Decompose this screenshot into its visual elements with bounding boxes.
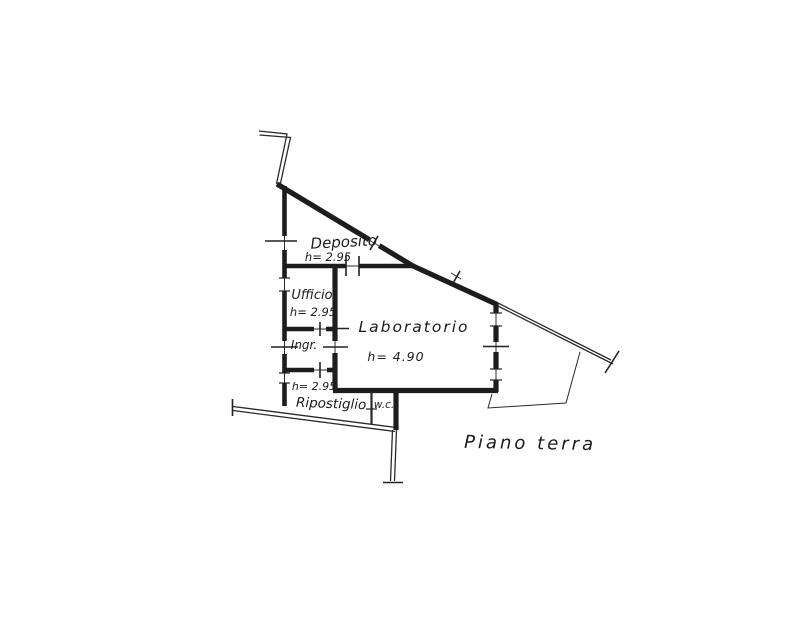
height-label-ripostiglio: h= 2.95 bbox=[292, 380, 336, 393]
height-label-laboratorio: h= 4.90 bbox=[367, 349, 424, 364]
room-label-ingresso: Ingr. bbox=[291, 338, 317, 352]
room-label-ufficio: Ufficio bbox=[291, 288, 332, 303]
floor-plan-drawing: Deposito h= 2.95 Ufficio h= 2.95 Ingr. h… bbox=[0, 0, 800, 639]
floor-plan: Deposito h= 2.95 Ufficio h= 2.95 Ingr. h… bbox=[0, 0, 800, 639]
retaining-wall-end-tick bbox=[605, 351, 619, 373]
room-label-ripostiglio: Ripostiglio bbox=[296, 395, 367, 413]
floor-title-label: Piano terra bbox=[464, 432, 596, 455]
room-label-laboratorio: Laboratorio bbox=[358, 318, 469, 336]
height-label-ufficio: h= 2.95 bbox=[290, 305, 336, 319]
site-vertical-line-b bbox=[395, 430, 397, 481]
room-label-wc: w.c. bbox=[374, 399, 394, 411]
site-vertical-line-a bbox=[391, 430, 393, 481]
site-zigzag-outer-line bbox=[259, 131, 287, 184]
retaining-wall-upper-line bbox=[496, 302, 611, 360]
height-label-deposito: h= 2.95 bbox=[305, 250, 351, 264]
retaining-wall-lower-line bbox=[498, 306, 613, 364]
